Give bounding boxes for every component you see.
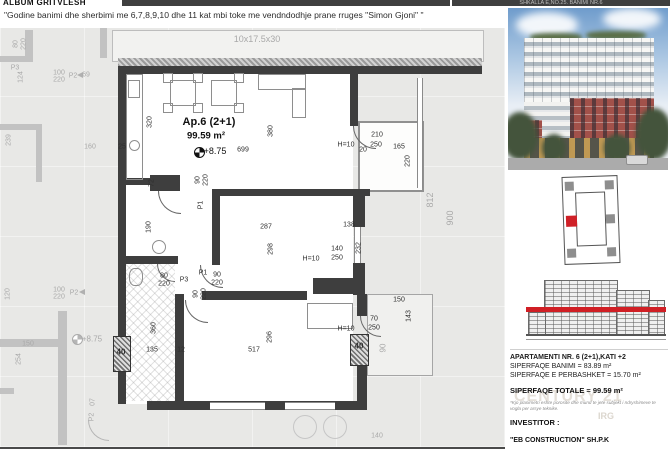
header-bar [122, 0, 450, 6]
faded-wall [0, 388, 14, 394]
chair [234, 73, 244, 83]
dimension-label: 80 [13, 40, 20, 48]
dimension-label: H=10 [338, 326, 355, 333]
wall-segment [313, 278, 365, 294]
chair [234, 103, 244, 113]
dimension-label: 40 [117, 348, 126, 357]
wall-segment [350, 74, 358, 126]
faded-wall [58, 311, 67, 445]
dimension-label: 380 [268, 125, 275, 137]
bathroom-sink-icon [152, 240, 166, 254]
section-level-highlight [526, 307, 666, 312]
dimension-label: 190 [146, 221, 153, 233]
dimension-label: 90 [195, 176, 202, 184]
dimension-label: 239 [6, 134, 13, 146]
investor-label: INVESTITOR : [510, 418, 668, 427]
car [626, 155, 648, 165]
dimension-label: 70 [370, 316, 378, 323]
ground-line [526, 334, 666, 336]
wall-segment [126, 256, 178, 264]
dimension-label: 254 [16, 353, 23, 365]
project-subtitle: "Godine banimi dhe sherbimi me 6,7,8,9,1… [4, 10, 504, 20]
dimension-label: 143 [406, 310, 413, 322]
dimension-label: 140 [331, 246, 343, 253]
faded-wall [36, 124, 42, 182]
dimension-label: 699 [237, 147, 249, 154]
section-block [528, 312, 546, 336]
dimension-label: 220 [203, 174, 210, 186]
dimension-label: 25 [118, 144, 126, 151]
dimension-label: P3 [180, 277, 189, 284]
dimension-label: 135 [146, 347, 158, 354]
dimension-label: 150 [22, 341, 34, 348]
dimension-label: 232 [356, 242, 363, 254]
wall-segment [357, 294, 367, 316]
chair [163, 103, 173, 113]
dimension-label: 220 [158, 281, 170, 288]
wall-segment [212, 189, 220, 265]
dimension-label: 517 [248, 347, 260, 354]
building-render-image [508, 8, 668, 170]
faded-column-circle [293, 415, 317, 439]
dimension-label: 220 [211, 280, 223, 287]
dimension-label: 220 [53, 77, 65, 84]
key-plan-unit [607, 247, 616, 256]
dimension-label: P2 [70, 290, 79, 297]
dimension-label: 90 [379, 344, 388, 353]
section-block [616, 290, 650, 336]
dimension-label: 210 [371, 132, 383, 139]
dimension-label: 250 [370, 142, 382, 149]
dimension-label: 220 [21, 38, 28, 50]
dimension-label: 360 [151, 322, 158, 334]
dimension-label: 296 [267, 331, 274, 343]
investor-name: "EB CONSTRUCTION" SH.P.K [510, 437, 668, 444]
key-plan-highlighted-unit [566, 215, 577, 226]
dimension-label: P2 [89, 413, 96, 422]
common-area-line: SIPERFAQE E PERBASHKET = 15.70 m² [510, 371, 668, 380]
disclaimer-note: *Kjo planimetri eshte porosite dhe mund … [510, 400, 660, 412]
dimension-label: P1 [199, 270, 208, 277]
tree [636, 108, 668, 160]
dimension-label: 100 [53, 70, 65, 77]
section-block [648, 300, 665, 336]
faded-wall [0, 56, 33, 62]
dimension-label: 124 [18, 71, 25, 83]
sheet-title-bar: SHKALLA E,NO.25. BANIMI NR.6 [452, 0, 670, 6]
ground-line [526, 339, 666, 340]
cloud [603, 8, 661, 30]
dimension-label: 140 [371, 433, 383, 440]
total-area-line: SIPERFAQE TOTALE = 99.59 m² [510, 386, 668, 395]
stove-icon [128, 80, 140, 98]
dimension-label: H=10 [338, 142, 355, 149]
dimension-label: 160 [84, 144, 96, 151]
key-plan-courtyard [575, 191, 607, 246]
window [285, 402, 335, 410]
chair [193, 73, 203, 83]
dimension-label: 900 [445, 210, 455, 225]
dimension-label: 287 [260, 224, 272, 231]
dimension-label: 72 [149, 179, 156, 187]
sink-icon [129, 140, 140, 151]
dimension-label: 20 [359, 147, 367, 154]
apartment-info-panel: APARTAMENTI NR. 6 (2+1),KATI +2 SIPERFAQ… [510, 349, 668, 444]
living-area-line: SIPERFAQE BANIMI = 83.89 m² [510, 362, 668, 371]
wall-segment [212, 189, 370, 196]
dimension-label: 250 [331, 255, 343, 262]
wall-segment [202, 291, 307, 300]
level-label: +8.75 [204, 146, 227, 156]
insulation-band [118, 58, 482, 66]
dimension-label: 250 [368, 325, 380, 332]
dimension-label: 150 [393, 297, 405, 304]
dimension-label: 138 [343, 222, 355, 229]
window [417, 78, 423, 188]
dimension-label: 812 [425, 192, 435, 207]
key-plan-unit [565, 182, 574, 191]
album-title: ALBUM GRITVLESH [3, 0, 86, 7]
level-marker-icon [194, 147, 205, 158]
chair [163, 73, 173, 83]
upper-floors [524, 38, 654, 102]
dimension-label: 320 [147, 116, 154, 128]
apartment-area-label: 99.59 m² [187, 131, 225, 142]
key-plan [561, 175, 620, 265]
apartment-number-line: APARTAMENTI NR. 6 (2+1),KATI +2 [510, 353, 668, 362]
dimension-label: 90 [193, 290, 200, 298]
dimension-label: 220 [53, 294, 65, 301]
dimension-label: 90 [213, 272, 221, 279]
key-plan-unit [606, 214, 615, 223]
dimension-label: P2 [69, 73, 78, 80]
dimension-label: 298 [268, 243, 275, 255]
dimension-label: 100 [53, 287, 65, 294]
building-section [526, 270, 666, 345]
toilet-icon [129, 268, 143, 286]
dimension-label: 12 [177, 347, 185, 354]
key-plan-unit [605, 180, 614, 189]
window [210, 402, 265, 410]
apartment-label: Ap.6 (2+1) [183, 116, 236, 128]
dimension-label: 220 [201, 288, 208, 300]
dimension-label: 120 [5, 288, 12, 300]
faded-column-circle [323, 415, 347, 439]
dimension-label: 40 [355, 342, 364, 351]
door-arc-faded [88, 420, 109, 441]
door-direction-icon [79, 289, 85, 295]
dimension-label: +8.75 [82, 335, 102, 344]
dimension-label: 165 [393, 144, 405, 151]
dimension-label: 80 [160, 273, 168, 280]
stair-label: 10x17.5x30 [234, 34, 281, 44]
dimension-label: 07 [90, 398, 97, 406]
chair [193, 103, 203, 113]
floor-plan: Ap.6 (2+1) 99.59 m² +8.75 10x17.5x30 320… [0, 28, 505, 449]
dimension-label: 69 [82, 72, 90, 79]
sofa [292, 88, 306, 118]
dimension-label: P1 [198, 201, 205, 210]
key-plan-unit [567, 249, 576, 258]
faded-wall [100, 28, 107, 58]
dimension-label: 220 [405, 155, 412, 167]
dimension-label: H=10 [303, 256, 320, 263]
drawing-sheet: ALBUM GRITVLESH SHKALLA E,NO.25. BANIMI … [0, 0, 670, 450]
